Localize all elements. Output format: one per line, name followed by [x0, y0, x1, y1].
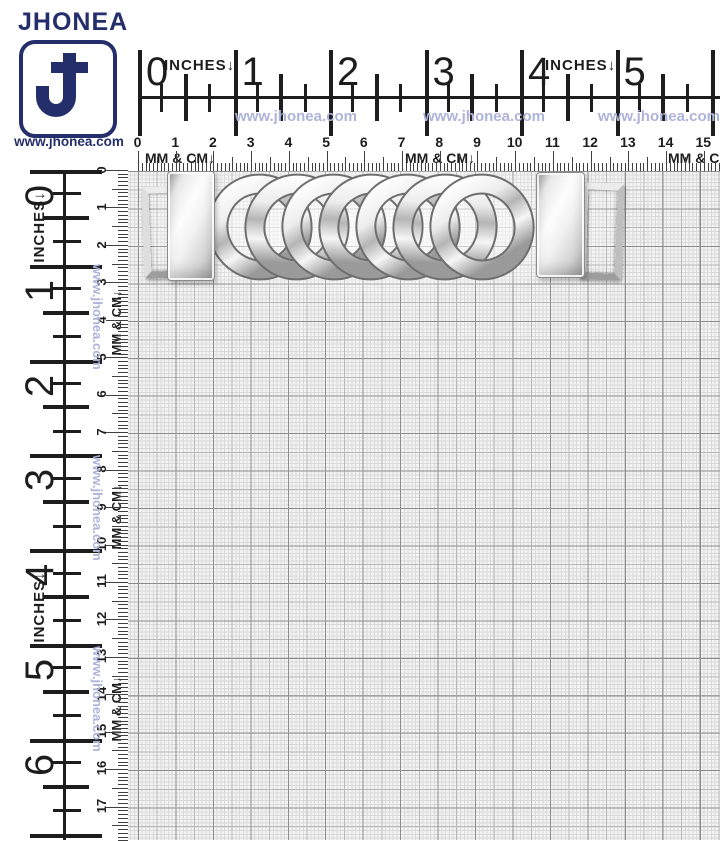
- logo-j-hook: [36, 86, 76, 117]
- brand-website: www.jhonea.com: [10, 134, 128, 149]
- mm-tick: [118, 428, 128, 429]
- mm-tick: [118, 271, 128, 272]
- mm-tick: [118, 679, 128, 680]
- cm-number: 13: [620, 134, 636, 150]
- cm-number: 14: [658, 134, 674, 150]
- mm-tick: [168, 163, 169, 171]
- mm-tick: [625, 163, 626, 171]
- mm-tick: [353, 163, 354, 171]
- mm-tick: [493, 163, 494, 171]
- mm-tick: [118, 406, 128, 407]
- mm-tick: [500, 163, 501, 171]
- mm-tick: [621, 163, 622, 171]
- mm-tick: [118, 211, 128, 212]
- inches-unit-label: INCHES↓: [32, 172, 48, 282]
- mm-tick: [530, 163, 531, 171]
- mm-tick: [342, 163, 343, 171]
- watermark: www.jhonea.com: [235, 108, 357, 125]
- mm-tick: [112, 189, 128, 190]
- mm-tick: [118, 743, 128, 744]
- mm-tick: [708, 163, 709, 171]
- watermark: www.jhonea.com: [423, 108, 545, 125]
- mm-tick: [210, 163, 211, 171]
- mm-tick: [118, 586, 128, 587]
- cm-number: 5: [322, 134, 330, 150]
- mm-tick: [118, 837, 128, 838]
- mm-tick: [118, 380, 128, 381]
- inch-number: 5: [624, 50, 646, 95]
- mm-tick: [118, 691, 128, 692]
- quarter-inch-tick: [53, 477, 81, 480]
- mm-tick: [118, 241, 128, 242]
- mm-tick: [118, 222, 128, 223]
- half-inch-tick: [375, 74, 379, 121]
- mm-tick: [515, 151, 516, 171]
- mm-tick: [715, 163, 716, 171]
- mm-tick: [659, 163, 660, 171]
- mm-tick: [118, 275, 128, 276]
- mm-tick: [704, 151, 705, 171]
- mm-tick: [118, 515, 128, 516]
- mm-tick: [118, 249, 128, 250]
- mm-tick: [402, 151, 403, 171]
- mm-tick: [112, 226, 128, 227]
- mm-tick: [118, 754, 128, 755]
- mm-tick: [628, 151, 629, 171]
- inch-tick: [30, 834, 102, 838]
- cm-number: 10: [507, 134, 523, 150]
- mm-tick: [428, 163, 429, 171]
- mm-tick: [106, 807, 128, 808]
- mm-tick: [118, 485, 128, 486]
- mm-tick: [118, 410, 128, 411]
- mm-tick: [118, 548, 128, 549]
- mm-tick: [602, 163, 603, 171]
- mm-tick: [118, 829, 128, 830]
- mm-tick: [436, 163, 437, 171]
- mm-tick: [118, 372, 128, 373]
- mm-tick: [106, 282, 128, 283]
- mm-tick: [118, 174, 128, 175]
- mm-tick: [183, 163, 184, 171]
- mm-tick: [118, 391, 128, 392]
- mm-tick: [118, 354, 128, 355]
- mm-tick: [118, 294, 128, 295]
- mm-tick: [118, 196, 128, 197]
- cm-number: 7: [398, 134, 406, 150]
- mm-tick: [481, 163, 482, 171]
- mm-tick: [106, 619, 128, 620]
- mm-tick: [432, 163, 433, 171]
- cm-number: 3: [247, 134, 255, 150]
- mm-tick: [447, 163, 448, 171]
- inch-number: 2: [22, 368, 58, 404]
- half-inch-tick: [43, 311, 89, 315]
- quarter-inch-tick: [208, 84, 211, 112]
- mm-tick: [118, 709, 128, 710]
- quarter-inch-tick: [590, 84, 593, 112]
- mm-tick: [689, 163, 690, 171]
- mm-tick: [191, 163, 192, 171]
- mm-tick: [118, 784, 128, 785]
- mm-tick: [387, 163, 388, 171]
- mm-tick: [255, 163, 256, 171]
- mm-tick: [681, 163, 682, 171]
- mm-tick: [327, 151, 328, 171]
- mm-tick: [421, 157, 422, 171]
- mm-tick: [118, 458, 128, 459]
- cm-number: 4: [284, 134, 292, 150]
- mm-tick: [118, 350, 128, 351]
- half-inch-tick: [566, 74, 570, 121]
- mm-tick: [376, 163, 377, 171]
- mm-tick: [187, 163, 188, 171]
- mm-tick: [198, 163, 199, 171]
- mm-tick: [251, 151, 252, 171]
- mm-tick: [477, 151, 478, 171]
- mm-tick: [106, 732, 128, 733]
- quarter-inch-tick: [53, 382, 81, 385]
- mm-tick: [270, 157, 271, 171]
- quarter-inch-tick: [53, 287, 81, 290]
- mm-tick: [118, 567, 128, 568]
- mm-tick: [118, 792, 128, 793]
- mm-tick: [662, 163, 663, 171]
- mm-tick: [118, 818, 128, 819]
- mm-tick: [118, 646, 128, 647]
- mm-tick: [118, 552, 128, 553]
- mm-tick: [118, 773, 128, 774]
- mm-tick: [606, 163, 607, 171]
- inches-unit-label: INCHES↓: [164, 57, 235, 74]
- mm-tick: [118, 192, 128, 193]
- mm-tick: [118, 616, 128, 617]
- brand-wordmark: JHONEA: [18, 8, 120, 37]
- mm-tick: [259, 163, 260, 171]
- mm-tick: [112, 750, 128, 751]
- mm-tick: [112, 601, 128, 602]
- mm-tick: [560, 163, 561, 171]
- mm-tick: [519, 163, 520, 171]
- mm-tick: [542, 163, 543, 171]
- mm-tick: [225, 163, 226, 171]
- mm-tick: [440, 151, 441, 171]
- mm-tick: [118, 608, 128, 609]
- mm-tick: [640, 163, 641, 171]
- mm-tick: [118, 260, 128, 261]
- mm-tick: [118, 473, 128, 474]
- mm-tick: [118, 728, 128, 729]
- mm-tick: [118, 234, 128, 235]
- mm-tick: [118, 500, 128, 501]
- half-inch-tick: [43, 500, 89, 504]
- mm-tick: [118, 503, 128, 504]
- mm-tick: [349, 163, 350, 171]
- mm-tick: [118, 530, 128, 531]
- mm-tick: [312, 163, 313, 171]
- mm-tick: [118, 522, 128, 523]
- mm-tick: [118, 724, 128, 725]
- mm-tick: [118, 481, 128, 482]
- mm-tick: [281, 163, 282, 171]
- product-photo: 0123456INCHES↓INCHES↓0123456789101112131…: [0, 0, 720, 840]
- mm-tick: [118, 279, 128, 280]
- mm-tick: [330, 163, 331, 171]
- half-inch-tick: [43, 785, 89, 789]
- mm-tick: [195, 157, 196, 171]
- mm-tick: [470, 163, 471, 171]
- mm-tick: [118, 604, 128, 605]
- mm-tick: [213, 151, 214, 171]
- mm-tick: [118, 455, 128, 456]
- mm-tick: [118, 747, 128, 748]
- mm-tick: [118, 631, 128, 632]
- cm-number: 6: [360, 134, 368, 150]
- mm-tick: [274, 163, 275, 171]
- mm-tick: [278, 163, 279, 171]
- mm-tick: [508, 163, 509, 171]
- left-end-clasp: [167, 171, 215, 281]
- mm-tick: [232, 157, 233, 171]
- mm-tick: [118, 492, 128, 493]
- mm-tick: [118, 387, 128, 388]
- mm-tick: [118, 541, 128, 542]
- mm-tick: [118, 342, 128, 343]
- mm-tick: [334, 163, 335, 171]
- mm-tick: [118, 309, 128, 310]
- mm-tick: [206, 163, 207, 171]
- mm-tick: [179, 163, 180, 171]
- mm-tick: [700, 163, 701, 171]
- mm-tick: [579, 163, 580, 171]
- mm-tick: [118, 252, 128, 253]
- mm-tick: [118, 758, 128, 759]
- mm-tick: [172, 163, 173, 171]
- quarter-inch-tick: [399, 84, 402, 112]
- mm-tick: [118, 477, 128, 478]
- mm-tick: [118, 537, 128, 538]
- mm-tick: [557, 163, 558, 171]
- inches-unit-label: INCHES↓: [32, 552, 48, 662]
- mm-tick: [677, 163, 678, 171]
- mm-tick: [308, 157, 309, 171]
- mm-tick: [118, 402, 128, 403]
- mm-tick: [106, 357, 128, 358]
- mm-tick: [118, 256, 128, 257]
- mm-tick: [112, 713, 128, 714]
- mm-tick: [112, 563, 128, 564]
- mm-tick: [564, 163, 565, 171]
- quarter-inch-tick: [53, 714, 81, 717]
- mm-tick: [118, 597, 128, 598]
- inches-unit-label: INCHES↓: [545, 57, 616, 74]
- quarter-inch-tick: [53, 666, 81, 669]
- mm-tick: [244, 163, 245, 171]
- mm-tick: [118, 177, 128, 178]
- mm-tick: [106, 694, 128, 695]
- mm-tick: [118, 556, 128, 557]
- mm-tick: [293, 163, 294, 171]
- mm-tick: [118, 642, 128, 643]
- mm-tick: [594, 163, 595, 171]
- mm-tick: [118, 795, 128, 796]
- mm-tick: [398, 163, 399, 171]
- mm-tick: [106, 320, 128, 321]
- mm-tick: [118, 365, 128, 366]
- mm-tick: [489, 163, 490, 171]
- mm-tick: [106, 769, 128, 770]
- curb-chain-links: [206, 172, 542, 284]
- mm-tick: [118, 297, 128, 298]
- mm-tick: [118, 230, 128, 231]
- mm-tick: [118, 533, 128, 534]
- inch-number: 2: [337, 50, 359, 95]
- mm-tick: [319, 163, 320, 171]
- mm-tick: [394, 163, 395, 171]
- cm-number: 1: [171, 134, 179, 150]
- mm-tick: [176, 151, 177, 171]
- mm-tick: [118, 331, 128, 332]
- mm-tick: [106, 582, 128, 583]
- watermark: www.jhonea.com: [90, 455, 104, 547]
- mm-tick: [345, 157, 346, 171]
- watermark: www.jhonea.com: [90, 646, 104, 738]
- mm-tick: [118, 735, 128, 736]
- mm-tick: [229, 163, 230, 171]
- mm-tick: [118, 668, 128, 669]
- mm-tick: [496, 157, 497, 171]
- mm-tick: [118, 833, 128, 834]
- mm-tick: [118, 765, 128, 766]
- half-inch-tick: [43, 690, 89, 694]
- mm-tick: [583, 163, 584, 171]
- mm-tick: [118, 346, 128, 347]
- mm-tick: [118, 447, 128, 448]
- mm-tick: [118, 653, 128, 654]
- quarter-inch-tick: [53, 335, 81, 338]
- mm-tick: [670, 163, 671, 171]
- quarter-inch-tick: [53, 619, 81, 622]
- mm-tick: [118, 739, 128, 740]
- mm-tick: [118, 368, 128, 369]
- mm-tick: [118, 237, 128, 238]
- inch-number: 3: [433, 50, 455, 95]
- mm-tick: [118, 803, 128, 804]
- mm-tick: [118, 316, 128, 317]
- mm-tick: [357, 163, 358, 171]
- mm-tick: [118, 559, 128, 560]
- mm-tick: [444, 163, 445, 171]
- half-inch-tick: [43, 405, 89, 409]
- mm-tick: [118, 440, 128, 441]
- quarter-inch-tick: [53, 430, 81, 433]
- mm-tick: [112, 526, 128, 527]
- mm-tick: [118, 518, 128, 519]
- mm-tick: [118, 612, 128, 613]
- mm-tick: [296, 163, 297, 171]
- mm-tick: [240, 163, 241, 171]
- mm-tick: [106, 170, 128, 171]
- mm-tick: [338, 163, 339, 171]
- mm-tick: [221, 163, 222, 171]
- quarter-inch-tick: [53, 525, 81, 528]
- mm-tick: [504, 163, 505, 171]
- mm-tick: [610, 157, 611, 171]
- mm-tick: [157, 157, 158, 171]
- mm-tick: [106, 545, 128, 546]
- quarter-inch-tick: [53, 809, 81, 812]
- mm-tick: [112, 676, 128, 677]
- mm-tick: [112, 376, 128, 377]
- mm-tick: [643, 163, 644, 171]
- mm-tick: [118, 200, 128, 201]
- mm-tick: [118, 185, 128, 186]
- mm-tick: [217, 163, 218, 171]
- mm-tick: [361, 163, 362, 171]
- mm-tick: [118, 717, 128, 718]
- mm-tick: [118, 215, 128, 216]
- mm-tick: [118, 649, 128, 650]
- mm-tick: [300, 163, 301, 171]
- mm-tick: [553, 151, 554, 171]
- mm-tick: [118, 398, 128, 399]
- mm-tick: [118, 810, 128, 811]
- mm-tick: [410, 163, 411, 171]
- mm-tick: [118, 721, 128, 722]
- mm-tick: [118, 706, 128, 707]
- mm-tick: [632, 163, 633, 171]
- mm-tick: [485, 163, 486, 171]
- mm-tick: [118, 634, 128, 635]
- mm-tick: [636, 163, 637, 171]
- mm-tick: [266, 163, 267, 171]
- mm-tick: [106, 245, 128, 246]
- mm-tick: [118, 698, 128, 699]
- cm-number: 12: [582, 134, 598, 150]
- mm-tick: [425, 163, 426, 171]
- mm-tick: [118, 627, 128, 628]
- mm-tick: [118, 687, 128, 688]
- mm-tick: [304, 163, 305, 171]
- mm-tick: [692, 163, 693, 171]
- mm-tick: [417, 163, 418, 171]
- mm-tick: [118, 571, 128, 572]
- mm-tick: [696, 163, 697, 171]
- ruler-baseline: [138, 96, 720, 99]
- mm-tick: [118, 661, 128, 662]
- mm-tick: [118, 672, 128, 673]
- mm-tick: [285, 163, 286, 171]
- mm-tick: [523, 163, 524, 171]
- mm-tick: [534, 157, 535, 171]
- mm-tick: [323, 163, 324, 171]
- mm-tick: [118, 305, 128, 306]
- mm-tick: [118, 578, 128, 579]
- mm-tick: [568, 163, 569, 171]
- mm-tick: [674, 163, 675, 171]
- mm-tick: [161, 163, 162, 171]
- mm-tick: [474, 163, 475, 171]
- mm-tick: [462, 163, 463, 171]
- mm-tick: [118, 425, 128, 426]
- mm-tick: [391, 163, 392, 171]
- mm-tick: [118, 327, 128, 328]
- watermark: www.jhonea.com: [598, 108, 720, 125]
- cm-number: 9: [473, 134, 481, 150]
- inch-number: 1: [242, 50, 264, 95]
- mm-tick: [711, 163, 712, 171]
- mm-tick: [112, 825, 128, 826]
